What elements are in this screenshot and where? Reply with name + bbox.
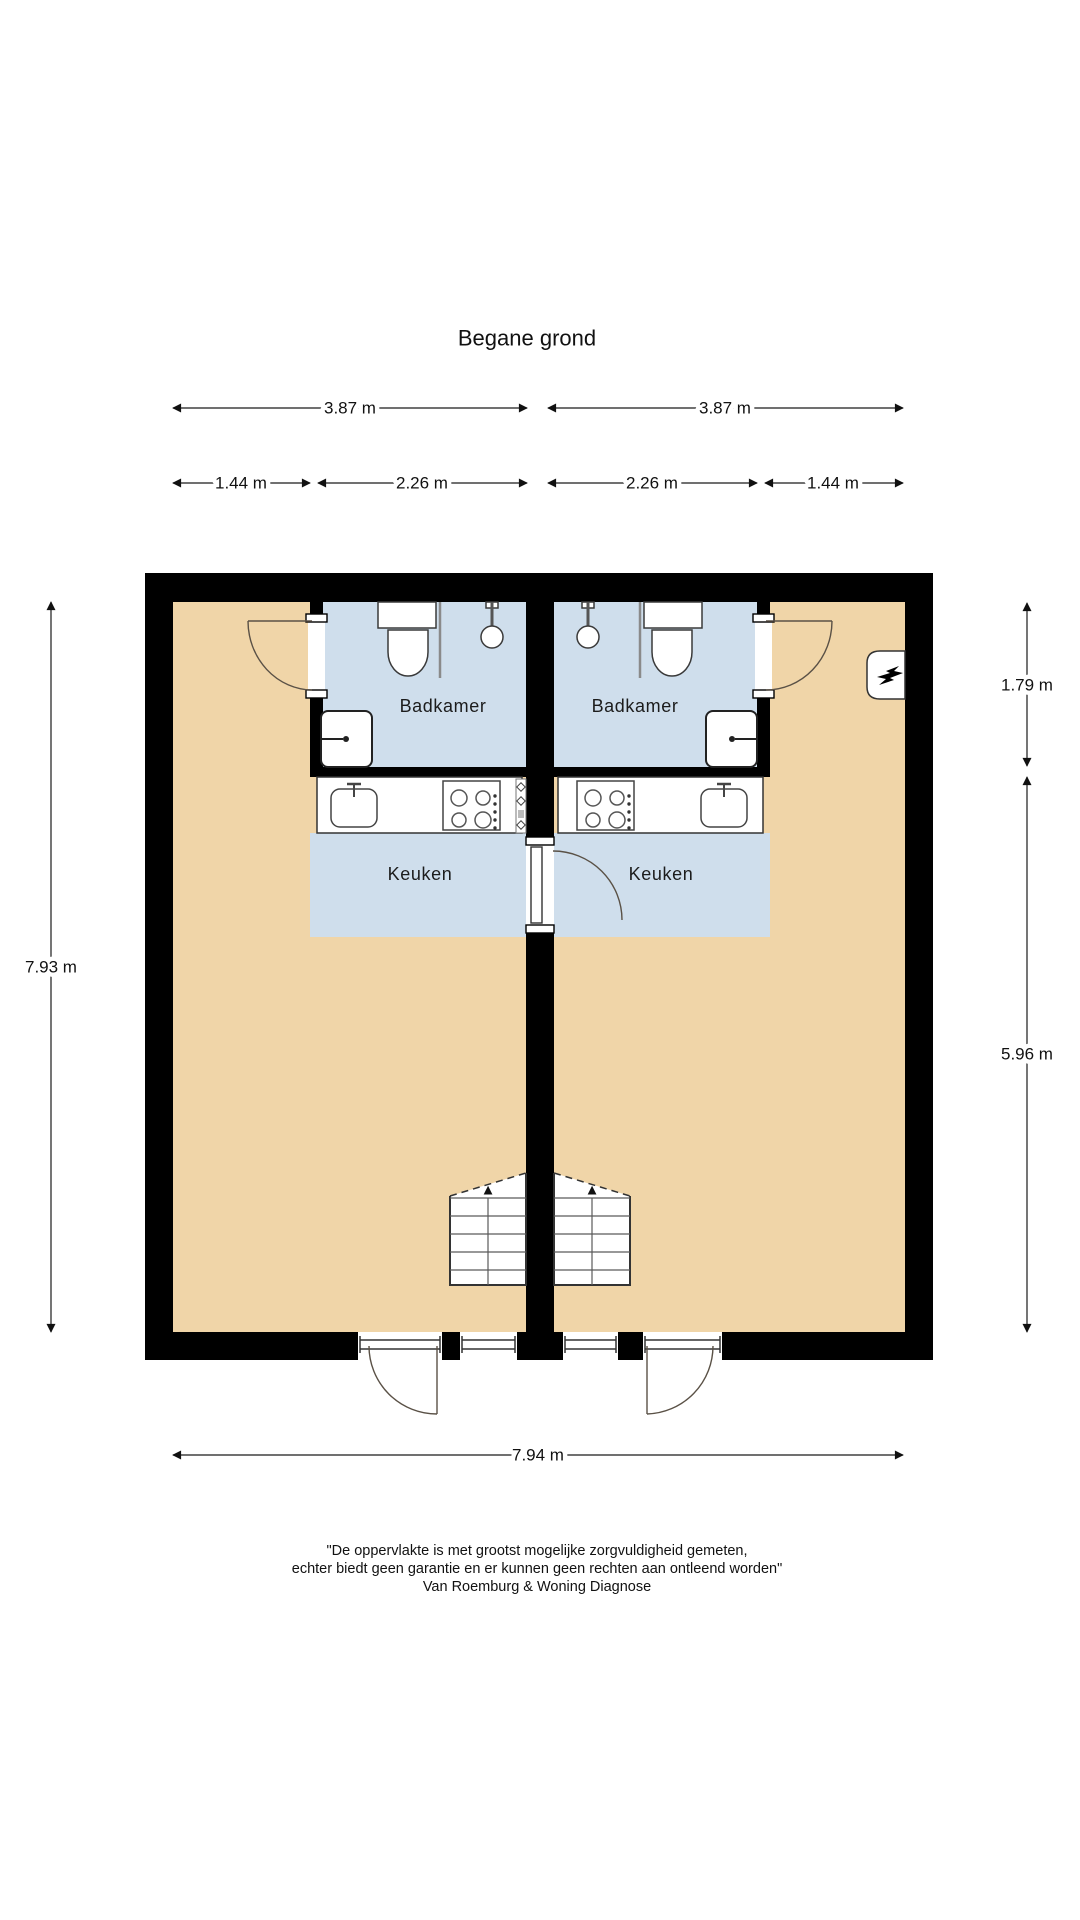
window-opening xyxy=(563,1332,618,1360)
shower-head xyxy=(481,626,503,648)
washbasin-drain xyxy=(729,736,735,742)
stairs-up-arrow-icon: ▲ xyxy=(585,1182,600,1199)
dim-label-right-room-height: 5.96 m xyxy=(1001,1045,1053,1064)
center-party-wall xyxy=(526,602,554,1332)
stove-icon xyxy=(443,781,500,830)
door-opening xyxy=(643,1332,722,1360)
washbasin-icon-left xyxy=(321,711,372,767)
kitchen-counter-right xyxy=(558,777,763,833)
door-opening xyxy=(308,616,325,698)
shower-head xyxy=(577,626,599,648)
dim-label-badkamer-left: 2.26 m xyxy=(396,474,448,493)
kitchen-counter-left xyxy=(317,777,522,833)
dim-label-right-badkamer-height: 1.79 m xyxy=(1001,676,1053,695)
page-title: Begane grond xyxy=(458,326,596,351)
dim-label-hall-right: 1.44 m xyxy=(807,474,859,493)
door-leaf xyxy=(531,847,542,923)
floorplan-svg: Begane grond 3.87 m 3.87 m 1.44 m 2.26 m… xyxy=(0,0,1080,1920)
door-jamb xyxy=(526,837,554,845)
stove-body xyxy=(443,781,500,830)
window-left xyxy=(460,1332,517,1360)
toilet-bowl xyxy=(652,630,692,676)
room-label-badkamer-right: Badkamer xyxy=(592,696,679,716)
door-opening xyxy=(755,616,772,698)
window-opening xyxy=(460,1332,517,1360)
room-label-badkamer-left: Badkamer xyxy=(400,696,487,716)
room-keuken-left xyxy=(310,833,526,937)
room-label-keuken-left: Keuken xyxy=(388,864,453,884)
badkamer-left-bottom-wall xyxy=(310,767,526,777)
dim-label-badkamer-right: 2.26 m xyxy=(626,474,678,493)
stairs-up-arrow-icon: ▲ xyxy=(481,1182,496,1199)
disclaimer-line-3: Van Roemburg & Woning Diagnose xyxy=(423,1579,651,1595)
disclaimer-line-2: echter biedt geen garantie en er kunnen … xyxy=(292,1561,782,1577)
door-jamb xyxy=(526,925,554,933)
toilet-cistern xyxy=(644,602,702,628)
stove-body xyxy=(577,781,634,830)
duct-symbol xyxy=(518,810,524,818)
room-label-keuken-right: Keuken xyxy=(629,864,694,884)
door-jamb xyxy=(753,690,774,698)
room-keuken-right xyxy=(554,833,770,937)
dim-label-top-left: 3.87 m xyxy=(324,399,376,418)
disclaimer-line-1: "De oppervlakte is met grootst mogelijke… xyxy=(326,1543,747,1559)
dim-label-bottom-width: 7.94 m xyxy=(512,1446,564,1465)
ventilation-unit-icon xyxy=(867,651,905,699)
dim-label-top-right: 3.87 m xyxy=(699,399,751,418)
stove-icon xyxy=(577,781,634,830)
washbasin-icon-right xyxy=(706,711,757,767)
floorplan-page: Begane grond 3.87 m 3.87 m 1.44 m 2.26 m… xyxy=(0,0,1080,1920)
window-right xyxy=(563,1332,618,1360)
toilet-bowl xyxy=(388,630,428,676)
door-opening xyxy=(358,1332,442,1360)
dim-label-hall-left: 1.44 m xyxy=(215,474,267,493)
duct-strip xyxy=(516,779,526,833)
floor-plan: ▲ ▲ xyxy=(145,573,933,1414)
badkamer-right-bottom-wall xyxy=(554,767,770,777)
washbasin-drain xyxy=(343,736,349,742)
door-jamb xyxy=(306,690,327,698)
toilet-cistern xyxy=(378,602,436,628)
dim-label-left-height: 7.93 m xyxy=(25,958,77,977)
